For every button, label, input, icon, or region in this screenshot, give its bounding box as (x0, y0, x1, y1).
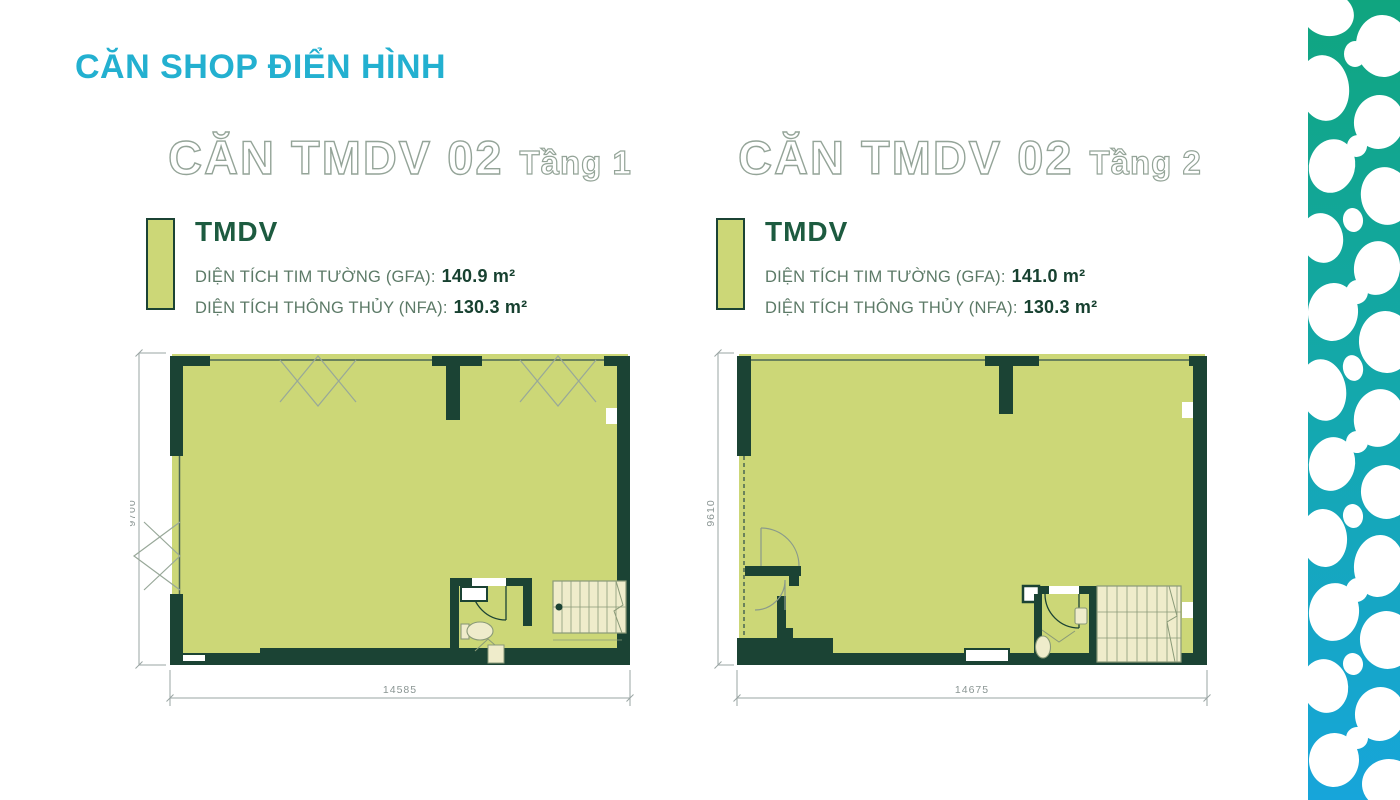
unit-name: CĂN TMDV 02 (168, 130, 503, 185)
unit-heading: CĂN TMDV 02 Tầng 1 (130, 130, 670, 185)
sink-fixture (461, 587, 487, 601)
page-title: CĂN SHOP ĐIỂN HÌNH (75, 48, 446, 87)
floor-plan-tang-1: 9700 14585 (130, 345, 670, 710)
legend-text: TMDV DIỆN TÍCH TIM TƯỜNG (GFA):140.9 m² … (195, 216, 527, 323)
dim-height-label: 9610 (705, 499, 717, 526)
stairs (1097, 586, 1181, 662)
floor-plan-tang-2: 9610 14675 (700, 345, 1240, 710)
gfa-value: 141.0 m² (1012, 266, 1086, 286)
nfa-label: DIỆN TÍCH THÔNG THỦY (NFA): (765, 299, 1018, 317)
gfa-row: DIỆN TÍCH TIM TƯỜNG (GFA):141.0 m² (765, 261, 1097, 292)
nfa-value: 130.3 m² (1024, 297, 1098, 317)
nfa-row: DIỆN TÍCH THÔNG THỦY (NFA):130.3 m² (195, 292, 527, 323)
nfa-value: 130.3 m² (454, 297, 528, 317)
dim-width-label: 14585 (383, 684, 417, 696)
plan-drawing (134, 354, 630, 665)
gfa-label: DIỆN TÍCH TIM TƯỜNG (GFA): (195, 268, 436, 286)
pebble-pattern-decoration (1288, 0, 1400, 800)
unit-floor-label: Tầng 1 (520, 144, 632, 182)
legend-color-swatch (146, 218, 175, 310)
nfa-row: DIỆN TÍCH THÔNG THỦY (NFA):130.3 m² (765, 292, 1097, 323)
legend: TMDV DIỆN TÍCH TIM TƯỜNG (GFA):140.9 m² … (146, 216, 527, 323)
unit-name: CĂN TMDV 02 (738, 130, 1073, 185)
toilet-fixture (1036, 636, 1051, 658)
gfa-value: 140.9 m² (442, 266, 516, 286)
legend: TMDV DIỆN TÍCH TIM TƯỜNG (GFA):141.0 m² … (716, 216, 1097, 323)
sink-fixture (1075, 608, 1087, 624)
plan-drawing (737, 354, 1207, 665)
unit-tang-2: CĂN TMDV 02 Tầng 2 TMDV DIỆN TÍCH TIM TƯ… (700, 120, 1240, 740)
toilet-fixture (467, 622, 493, 640)
unit-heading: CĂN TMDV 02 Tầng 2 (700, 130, 1240, 185)
dim-height-label: 9700 (130, 499, 138, 526)
legend-color-swatch (716, 218, 745, 310)
dim-width-label: 14675 (955, 684, 989, 696)
gfa-label: DIỆN TÍCH TIM TƯỜNG (GFA): (765, 268, 1006, 286)
legend-text: TMDV DIỆN TÍCH TIM TƯỜNG (GFA):141.0 m² … (765, 216, 1097, 323)
unit-tang-1: CĂN TMDV 02 Tầng 1 TMDV DIỆN TÍCH TIM TƯ… (130, 120, 670, 740)
legend-title: TMDV (765, 216, 1097, 248)
legend-title: TMDV (195, 216, 527, 248)
stairs (553, 581, 626, 640)
nfa-label: DIỆN TÍCH THÔNG THỦY (NFA): (195, 299, 448, 317)
unit-floor-label: Tầng 2 (1090, 144, 1202, 182)
gfa-row: DIỆN TÍCH TIM TƯỜNG (GFA):140.9 m² (195, 261, 527, 292)
